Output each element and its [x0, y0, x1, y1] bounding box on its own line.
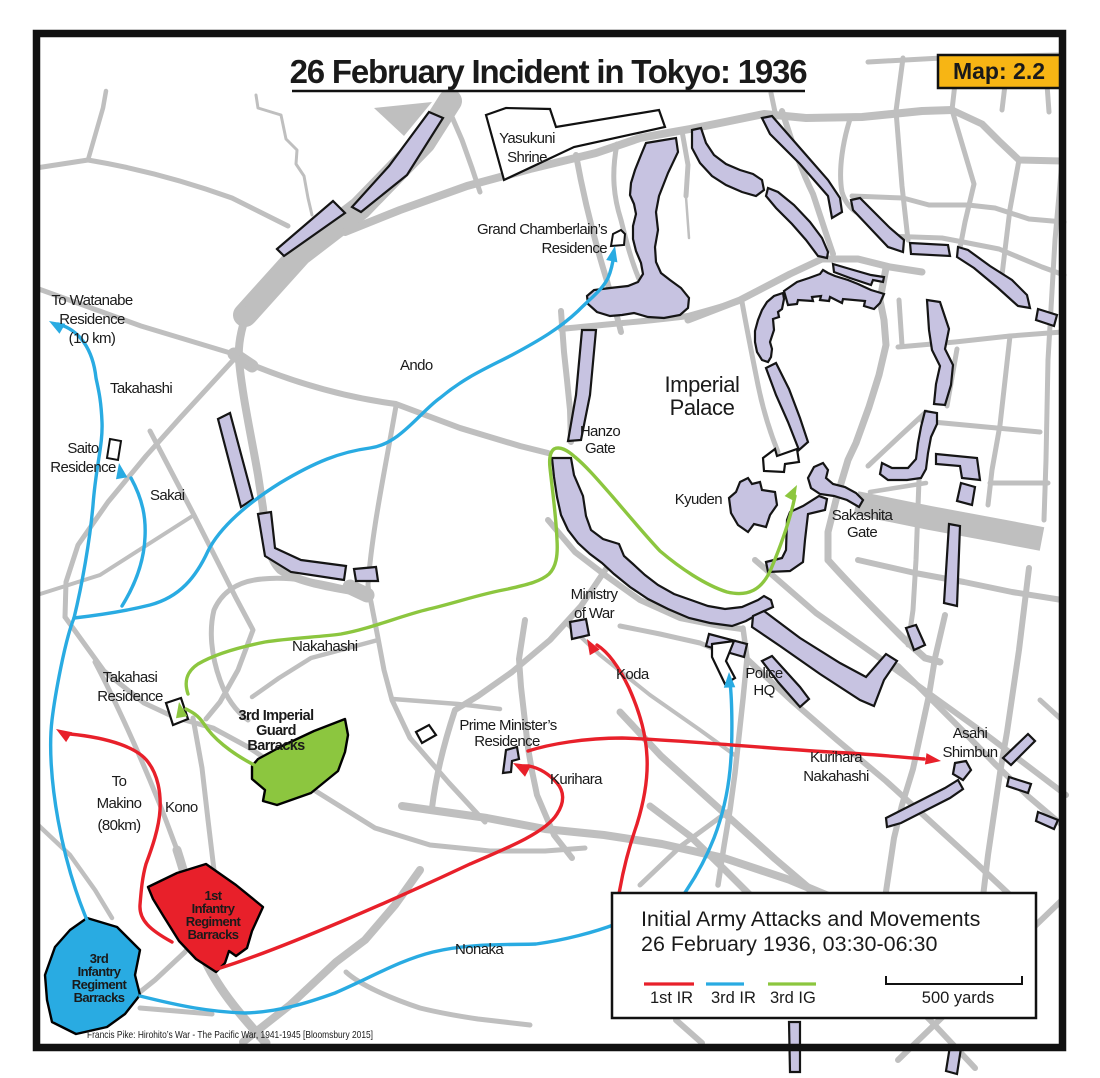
svg-text:Koda: Koda [616, 666, 650, 683]
svg-text:26 February 1936, 03:30-06:30: 26 February 1936, 03:30-06:30 [641, 932, 937, 956]
svg-text:3rd Imperial: 3rd Imperial [239, 708, 314, 724]
svg-text:Barracks: Barracks [188, 927, 239, 942]
svg-text:Imperial: Imperial [664, 372, 739, 397]
svg-text:Police: Police [745, 665, 783, 682]
svg-text:Takahasi: Takahasi [103, 669, 158, 686]
svg-text:3rd IR: 3rd IR [711, 989, 756, 1007]
svg-text:3rd IG: 3rd IG [770, 989, 816, 1007]
svg-text:Residence: Residence [542, 240, 608, 257]
svg-text:Map: 2.2: Map: 2.2 [953, 58, 1045, 84]
svg-text:Takahashi: Takahashi [110, 380, 172, 397]
svg-text:Kurihara: Kurihara [550, 771, 603, 788]
svg-text:Initial Army Attacks and Movem: Initial Army Attacks and Movements [641, 907, 980, 931]
svg-text:Grand Chamberlain’s: Grand Chamberlain’s [477, 221, 607, 238]
svg-text:of War: of War [574, 605, 615, 622]
svg-text:Kurihara: Kurihara [810, 749, 863, 766]
svg-text:Residence: Residence [59, 311, 125, 328]
svg-text:Sakashita: Sakashita [832, 507, 894, 524]
svg-text:(80km): (80km) [97, 817, 141, 834]
svg-text:To: To [112, 773, 127, 790]
svg-text:Hanzo: Hanzo [580, 423, 621, 440]
svg-text:Residence: Residence [97, 688, 163, 705]
svg-text:26 February Incident in Tokyo:: 26 February Incident in Tokyo: 1936 [290, 53, 808, 90]
svg-text:Shimbun: Shimbun [942, 744, 997, 761]
svg-text:Ministry: Ministry [571, 586, 619, 603]
svg-text:HQ: HQ [753, 682, 774, 699]
svg-text:Kono: Kono [165, 799, 198, 816]
svg-text:Gate: Gate [585, 440, 615, 457]
svg-text:Barracks: Barracks [74, 990, 125, 1005]
svg-text:1st IR: 1st IR [650, 989, 693, 1007]
svg-text:Kyuden: Kyuden [675, 491, 723, 508]
svg-text:Prime Minister’s: Prime Minister’s [459, 717, 556, 734]
svg-text:Gate: Gate [847, 524, 877, 541]
svg-text:Sakai: Sakai [150, 487, 185, 504]
svg-text:(10 km): (10 km) [69, 330, 116, 347]
svg-text:Barracks: Barracks [247, 738, 305, 754]
svg-text:Ando: Ando [400, 357, 433, 374]
svg-text:500 yards: 500 yards [922, 989, 994, 1007]
svg-text:Palace: Palace [670, 395, 735, 420]
svg-text:Nakahashi: Nakahashi [292, 638, 358, 655]
svg-text:Shrine: Shrine [507, 149, 547, 166]
svg-text:Nonaka: Nonaka [455, 941, 504, 958]
svg-text:Makino: Makino [97, 795, 142, 812]
svg-text:To Watanabe: To Watanabe [51, 292, 132, 309]
svg-text:Residence: Residence [50, 459, 116, 476]
svg-text:Asahi: Asahi [953, 725, 988, 742]
svg-text:Yasukuni: Yasukuni [499, 130, 555, 147]
svg-text:Nakahashi: Nakahashi [803, 768, 869, 785]
svg-text:Saito: Saito [67, 440, 98, 457]
svg-text:Francis Pike: Hirohito’s War: Francis Pike: Hirohito’s War - The Pacif… [87, 1029, 373, 1041]
svg-text:Residence: Residence [474, 733, 540, 750]
svg-text:Guard: Guard [256, 723, 296, 739]
